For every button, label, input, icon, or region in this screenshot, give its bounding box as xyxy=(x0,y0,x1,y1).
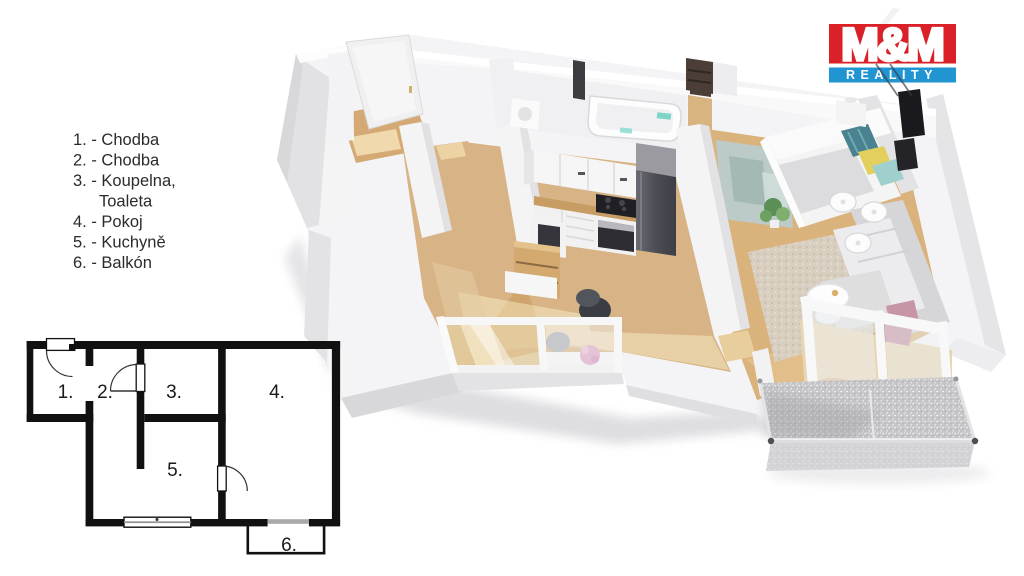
svg-text:1.: 1. xyxy=(58,382,74,403)
svg-text:6.: 6. xyxy=(281,535,297,556)
svg-text:3. - Koupelna,: 3. - Koupelna, xyxy=(73,172,176,190)
svg-text:4. - Pokoj: 4. - Pokoj xyxy=(73,213,143,231)
svg-text:4.: 4. xyxy=(269,382,285,403)
svg-text:5. - Kuchyně: 5. - Kuchyně xyxy=(73,234,166,252)
svg-text:3.: 3. xyxy=(166,382,182,403)
svg-text:6. - Balkón: 6. - Balkón xyxy=(73,254,152,272)
svg-text:1. - Chodba: 1. - Chodba xyxy=(73,131,160,149)
svg-text:2.: 2. xyxy=(97,382,113,403)
svg-text:2. - Chodba: 2. - Chodba xyxy=(73,152,160,170)
svg-text:Toaleta: Toaleta xyxy=(99,193,153,211)
svg-text:5.: 5. xyxy=(167,460,183,481)
svg-text:REALITY: REALITY xyxy=(846,68,938,82)
svg-text:M&M: M&M xyxy=(841,19,942,70)
